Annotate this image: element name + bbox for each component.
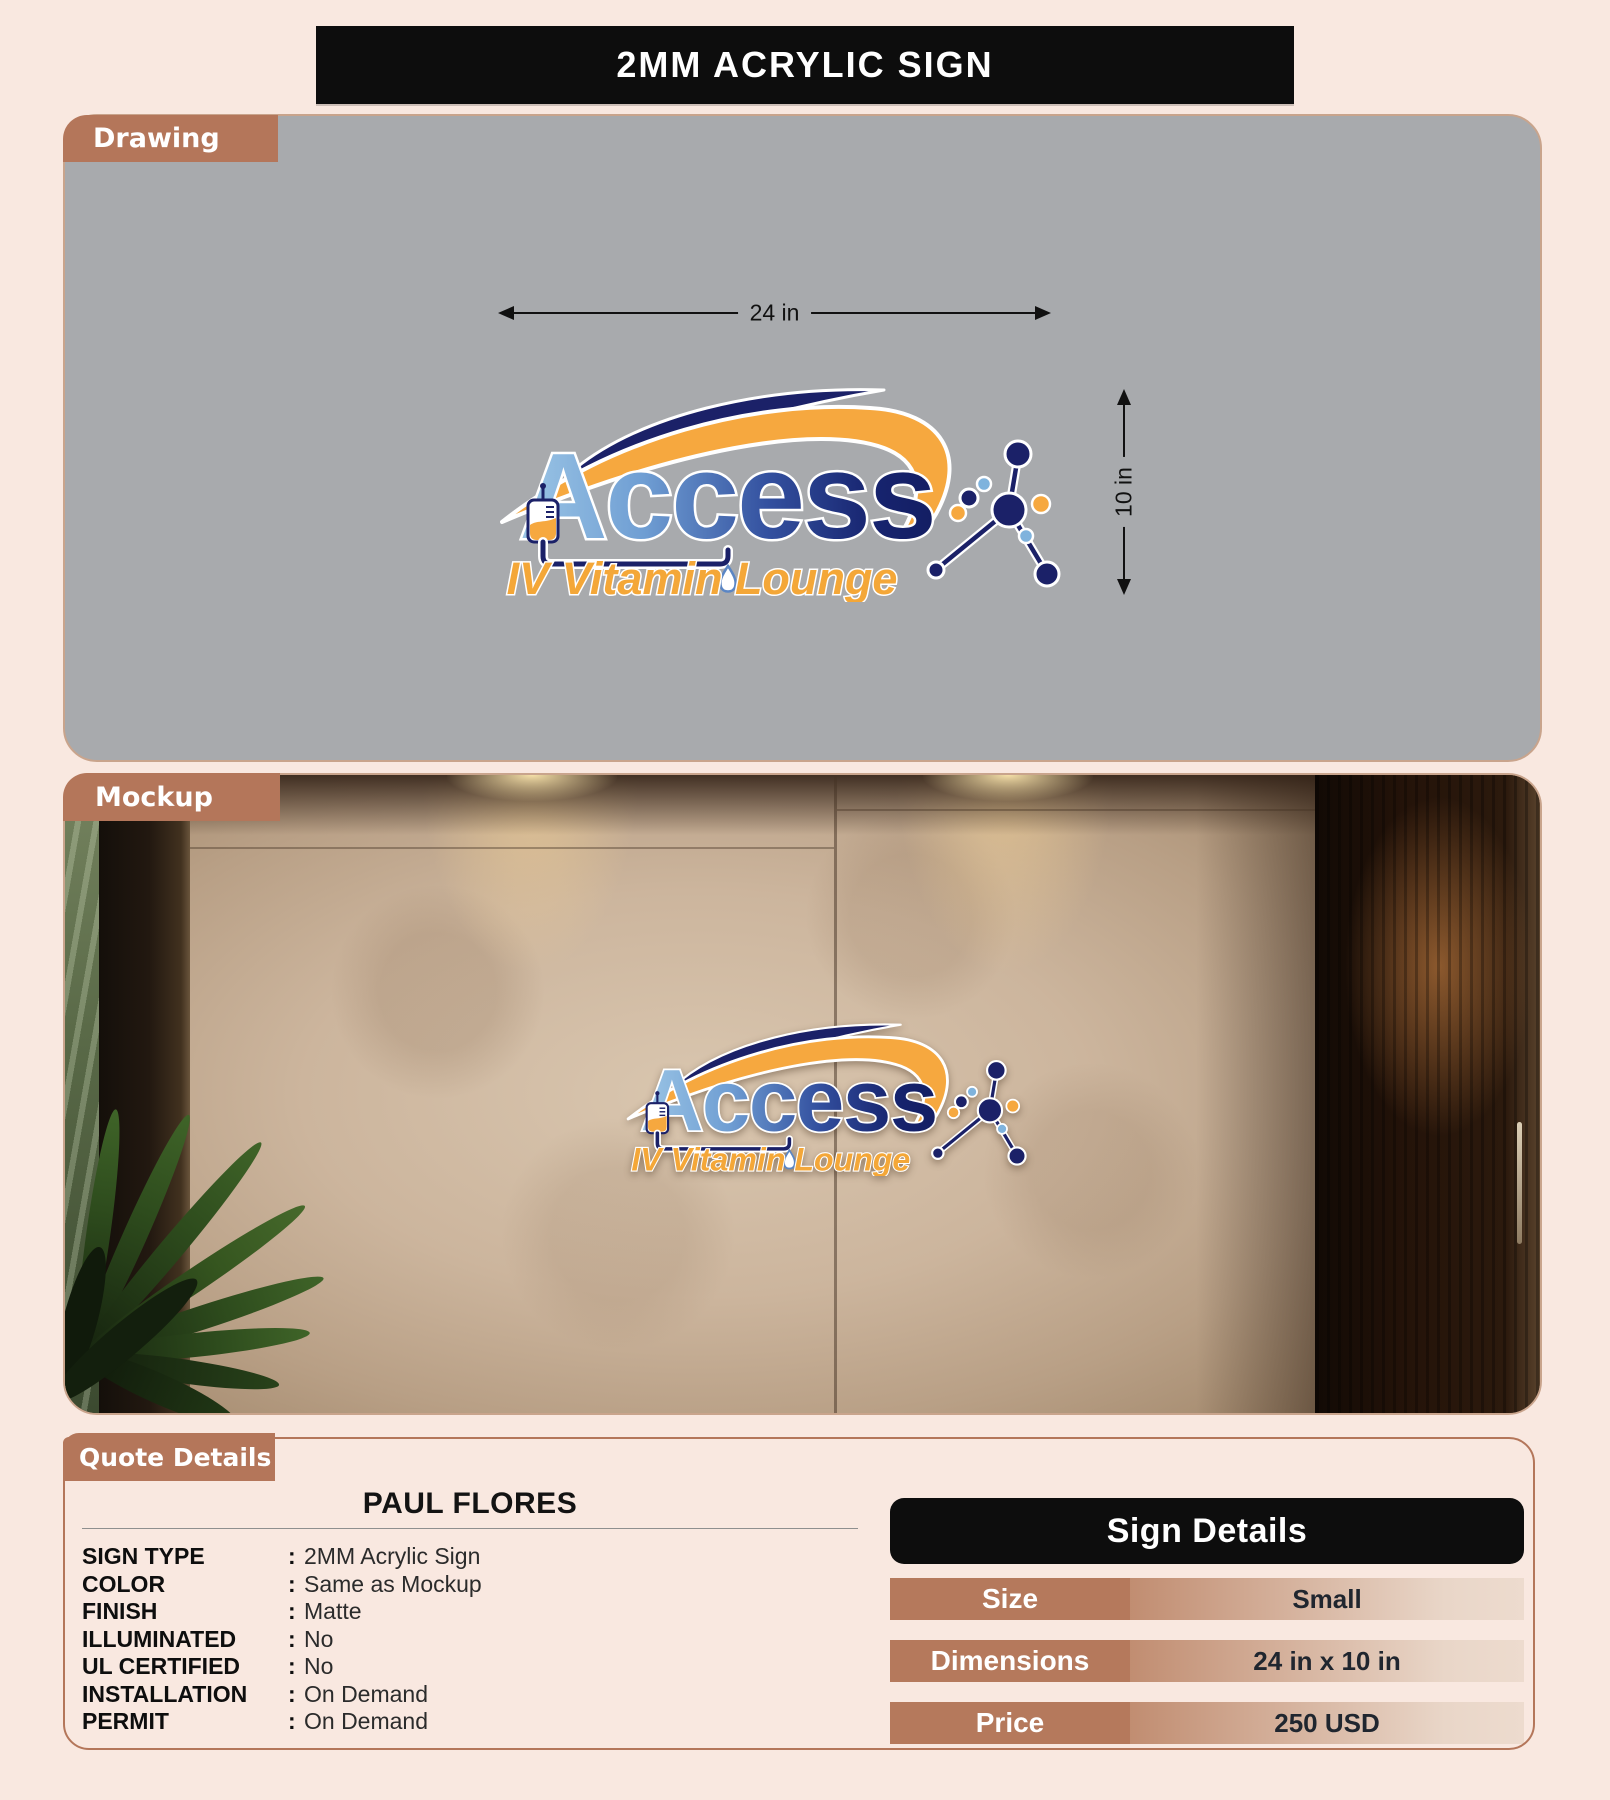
page: { "title": "2MM ACRYLIC SIGN", "sections… xyxy=(0,0,1610,1800)
spotlight-icon xyxy=(447,775,617,801)
plant xyxy=(63,1029,381,1415)
arrow-right-icon xyxy=(1035,306,1051,320)
wood-door xyxy=(1316,775,1540,1413)
width-dimension: 24 in xyxy=(498,302,1051,324)
quote-details-tab: Quote Details xyxy=(63,1433,275,1481)
access-logo: Access xyxy=(490,382,1070,602)
mockup-panel: Access xyxy=(63,773,1542,1415)
height-dimension: 10 in xyxy=(1113,389,1135,595)
logo-tagline: IV Vitamin Lounge xyxy=(507,553,898,602)
logo-wordmark: Access xyxy=(519,428,934,564)
wall-shadow xyxy=(1196,775,1316,1413)
wall-seam xyxy=(837,809,1316,811)
spotlight-icon xyxy=(923,775,1093,801)
arrow-down-icon xyxy=(1117,579,1131,595)
mockup-tab-label: Mockup xyxy=(95,782,213,813)
arrow-up-icon xyxy=(1117,389,1131,405)
width-dimension-label: 24 in xyxy=(738,300,812,327)
door-handle xyxy=(1517,1122,1522,1244)
page-title: 2MM ACRYLIC SIGN xyxy=(616,44,993,86)
drawing-section-tab: Drawing xyxy=(63,115,278,162)
access-logo-mockup: Access xyxy=(619,1019,1034,1176)
height-dimension-label: 10 in xyxy=(1111,457,1138,527)
quote-details-panel xyxy=(63,1437,1535,1750)
quote-tab-label: Quote Details xyxy=(79,1443,271,1472)
drawing-tab-label: Drawing xyxy=(93,123,220,154)
logo-tagline: IV Vitamin Lounge xyxy=(631,1141,910,1176)
ceiling-shadow xyxy=(190,775,1316,835)
wall-seam xyxy=(190,847,834,849)
arrow-left-icon xyxy=(498,306,514,320)
mockup-section-tab: Mockup xyxy=(63,773,280,821)
drawing-panel: 24 in 10 in Access xyxy=(63,114,1542,762)
title-banner: 2MM ACRYLIC SIGN xyxy=(316,26,1294,104)
door-frame xyxy=(1315,775,1319,1413)
mockup-photo: Access xyxy=(65,775,1540,1413)
logo-wordmark: Access xyxy=(640,1052,936,1149)
